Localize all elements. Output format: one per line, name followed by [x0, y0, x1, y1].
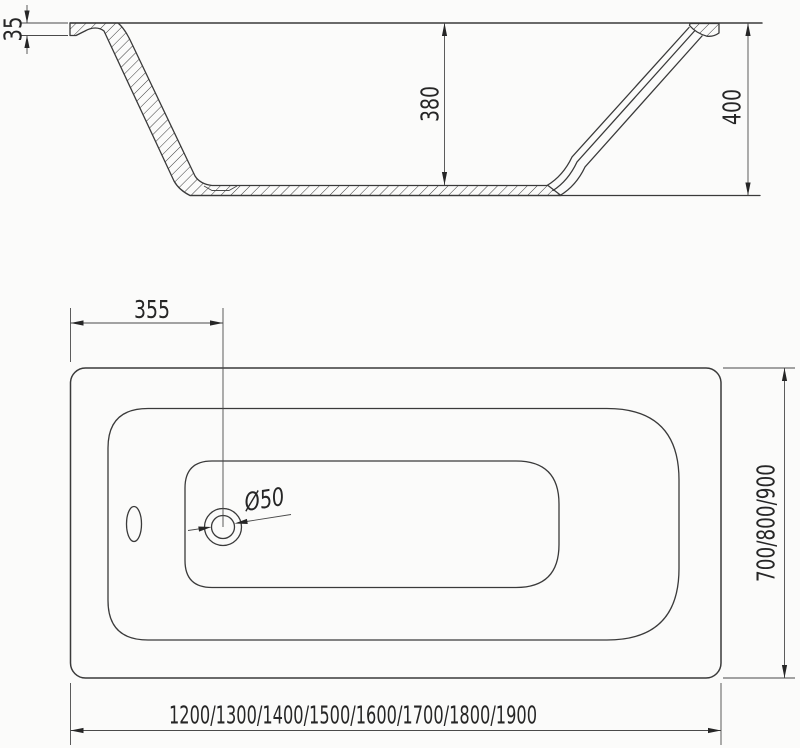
dim-inner-depth: 380 — [416, 23, 448, 185]
dim-length-options: 1200/1300/1400/1500/1600/1700/1800/1900 — [71, 683, 722, 745]
right-wall-inner-line — [547, 28, 689, 186]
dim-label-total-height: 400 — [718, 89, 747, 125]
side-view: 35 380 400 — [0, 5, 762, 196]
top-view: 355 Ø50 700/800/900 1200/1300/1400/1500/… — [71, 295, 796, 745]
right-wall-middle-line — [553, 31, 695, 191]
dim-label-rim-height: 35 — [0, 17, 28, 42]
dim-width-options: 700/800/900 — [723, 368, 795, 678]
arrow-left-icon — [71, 320, 84, 325]
arrow-right-icon — [708, 728, 721, 733]
arrow-down-icon — [782, 665, 787, 678]
overflow-hole — [127, 507, 142, 542]
dim-label-length-options: 1200/1300/1400/1500/1600/1700/1800/1900 — [169, 701, 537, 730]
tub-section-right-rim — [690, 24, 720, 37]
dim-drain-offset: 355 — [71, 295, 224, 362]
dim-label-drain-diameter: Ø50 — [242, 482, 287, 517]
drawing-canvas: 35 380 400 — [0, 0, 800, 748]
dim-rim-height: 35 — [0, 5, 68, 54]
arrow-right-icon — [210, 320, 223, 325]
right-wall-outer-line — [560, 36, 702, 196]
arrow-down-icon — [442, 172, 447, 185]
dim-label-inner-depth: 380 — [416, 86, 445, 122]
arrow-down-icon — [745, 183, 750, 196]
arrow-up-icon — [442, 23, 447, 36]
arrow-up-icon — [745, 23, 750, 36]
dim-label-drain-offset: 355 — [134, 295, 170, 324]
tub-section-left-wall-and-floor — [70, 23, 561, 196]
dim-label-width-options: 700/800/900 — [752, 464, 781, 582]
arrow-up-icon — [782, 368, 787, 381]
dim-total-height: 400 — [718, 23, 751, 196]
bathtub-technical-drawing: 35 380 400 — [0, 0, 800, 748]
tub-outer-rim — [71, 368, 722, 678]
dim-drain-diameter: Ø50 — [188, 482, 291, 532]
arrow-left-icon — [71, 728, 84, 733]
tub-inner-rim — [108, 409, 679, 641]
